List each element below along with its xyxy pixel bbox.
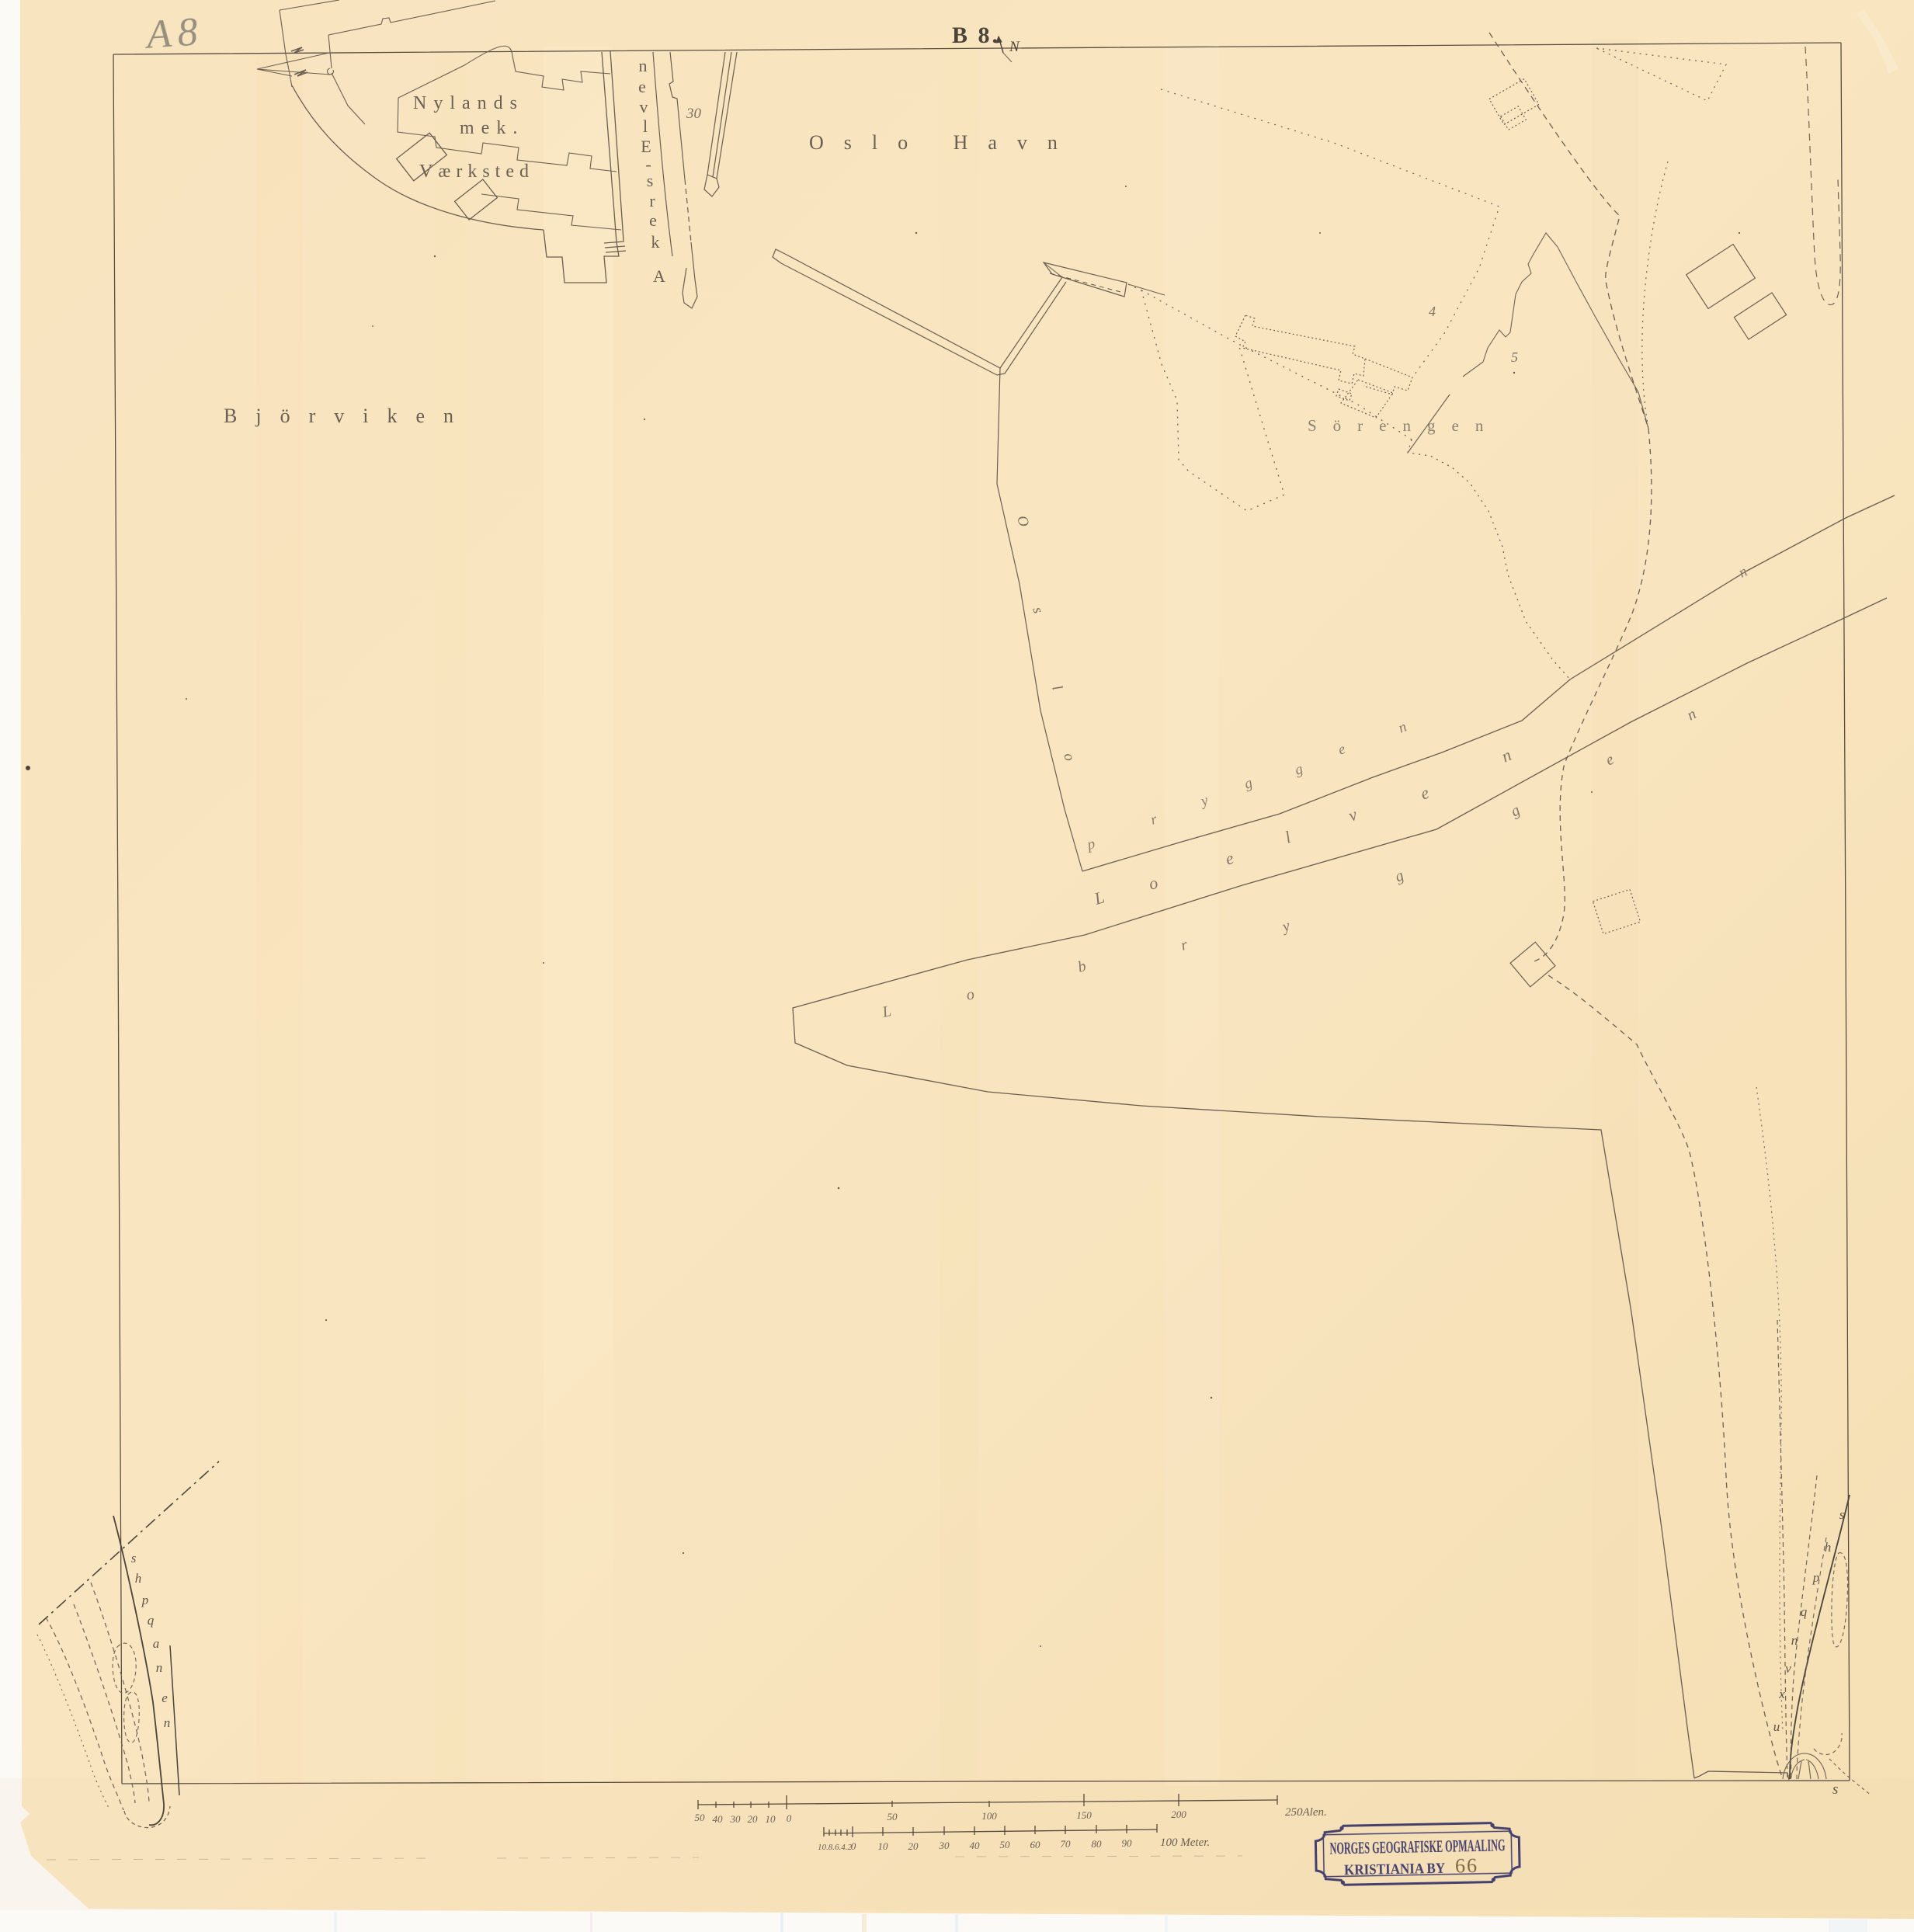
svg-text:20: 20 (908, 1840, 919, 1852)
svg-text:80: 80 (1092, 1838, 1103, 1850)
svg-text:5: 5 (1511, 349, 1518, 365)
svg-text:0: 0 (787, 1812, 792, 1824)
svg-text:70: 70 (1061, 1838, 1072, 1850)
svg-text:p: p (141, 1593, 149, 1607)
svg-text:4: 4 (1429, 304, 1436, 319)
svg-text:60: 60 (1030, 1839, 1041, 1850)
svg-text:p: p (1812, 1570, 1820, 1585)
svg-text:10.8.6.4.2: 10.8.6.4.2 (818, 1843, 853, 1852)
svg-text:30: 30 (730, 1813, 742, 1825)
svg-text:n: n (156, 1660, 163, 1675)
svg-text:v: v (640, 97, 648, 116)
svg-text:e: e (638, 77, 646, 96)
svg-text:h: h (1825, 1540, 1832, 1555)
svg-text:u: u (1773, 1719, 1780, 1734)
svg-text:40: 40 (713, 1813, 724, 1825)
svg-text:e: e (162, 1690, 168, 1705)
svg-text:66: 66 (1455, 1854, 1479, 1878)
svg-text:150: 150 (1076, 1809, 1092, 1821)
svg-text:50: 50 (695, 1812, 706, 1823)
svg-text:k: k (651, 232, 660, 252)
svg-text:Oslo Havn: Oslo Havn (809, 131, 1078, 154)
svg-text:Sörengen: Sörengen (1308, 416, 1499, 435)
svg-text:r: r (649, 191, 655, 210)
svg-text:E: E (641, 137, 651, 156)
svg-text:e: e (649, 210, 657, 230)
svg-text:30: 30 (686, 106, 702, 122)
svg-text:s: s (131, 1551, 137, 1565)
svg-text:n: n (164, 1715, 171, 1730)
svg-text:mek.: mek. (460, 118, 524, 138)
svg-text:50: 50 (888, 1811, 898, 1823)
svg-text:Björviken: Björviken (224, 405, 472, 427)
svg-text:100: 100 (981, 1810, 997, 1822)
svg-text:v: v (1785, 1661, 1791, 1676)
svg-text:Værksted: Værksted (419, 162, 534, 182)
svg-text:q: q (148, 1613, 155, 1628)
svg-text:20: 20 (748, 1813, 759, 1825)
svg-text:h: h (135, 1571, 142, 1586)
svg-text:s: s (647, 171, 654, 190)
svg-text:250Alen.: 250Alen. (1285, 1806, 1327, 1819)
svg-text:Nylands: Nylands (413, 93, 524, 113)
svg-text:50: 50 (1000, 1839, 1011, 1850)
svg-text:n: n (639, 56, 648, 75)
svg-text:200: 200 (1171, 1809, 1186, 1820)
svg-text:10: 10 (766, 1813, 776, 1825)
svg-text:l: l (643, 116, 648, 136)
svg-text:NORGES GEOGRAFISKE OPMAALING: NORGES GEOGRAFISKE OPMAALING (1329, 1835, 1505, 1857)
svg-text:a: a (153, 1636, 160, 1651)
svg-text:q: q (1801, 1604, 1808, 1619)
svg-text:10: 10 (878, 1840, 889, 1852)
svg-text:B 8.: B 8. (952, 23, 1000, 48)
svg-text:0: 0 (851, 1840, 856, 1852)
svg-text:s: s (1839, 1507, 1845, 1522)
svg-text:n: n (1791, 1633, 1798, 1648)
svg-text:100 Meter.: 100 Meter. (1160, 1836, 1210, 1849)
svg-text:s: s (1832, 1781, 1838, 1798)
svg-text:40: 40 (970, 1840, 981, 1851)
svg-text:x: x (1778, 1687, 1785, 1701)
svg-text:KRISTIANIA BY: KRISTIANIA BY (1344, 1861, 1446, 1878)
svg-text:30: 30 (939, 1840, 950, 1851)
svg-text:N: N (1009, 39, 1020, 55)
svg-text:A8: A8 (143, 9, 206, 57)
svg-text:90: 90 (1122, 1837, 1133, 1849)
svg-text:A: A (653, 266, 665, 286)
